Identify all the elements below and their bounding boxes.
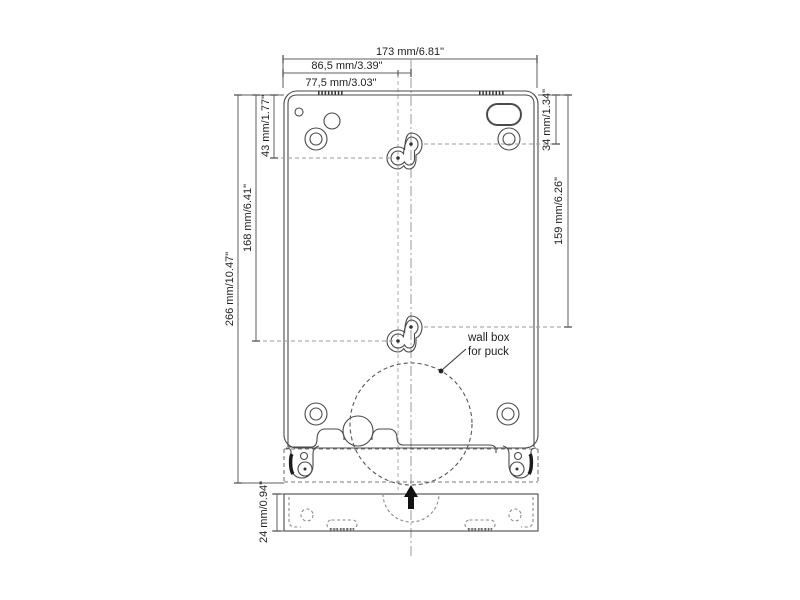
dim-label-width-total: 173 mm/6.81" — [376, 46, 444, 58]
technical-drawing: wall box for puck 173 mm/6.81" 86,5 mm/3… — [0, 0, 800, 600]
dim-label-holes-span-left: 168 mm/6.41" — [242, 184, 254, 252]
puck-hole — [343, 416, 373, 446]
wall-box-label-line2: for puck — [468, 346, 509, 358]
reference-lines — [398, 60, 411, 558]
wall-box-annotation: wall box for puck — [439, 332, 510, 373]
arrow-up-icon — [404, 485, 418, 509]
cable-slot — [487, 104, 521, 125]
screw-hole-inner — [502, 408, 514, 420]
dimensions-left: 43 mm/1.77" 168 mm/6.41" 266 mm/10.47" — [224, 95, 393, 483]
dim-label-hole-top-right: 34 mm/1.34" — [541, 89, 553, 151]
corner-hole — [295, 108, 303, 116]
screw-hole-inner — [503, 133, 515, 145]
dim-label-width-center: 86,5 mm/3.39" — [311, 60, 382, 72]
mounting-tab-right — [503, 446, 536, 478]
screw-hole-outer — [497, 403, 519, 425]
wall-box-label-line1: wall box — [467, 332, 510, 344]
tab-fold-dark — [291, 454, 293, 474]
tab-fold-dark — [529, 454, 531, 474]
screw-hole-inner — [310, 408, 322, 420]
dimension-depth: 24 mm/0.94" — [258, 481, 284, 543]
bottom-contour-left — [288, 429, 344, 447]
drawing-canvas: wall box for puck 173 mm/6.81" 86,5 mm/3… — [0, 0, 800, 600]
keyhole-mount-bottom — [387, 316, 422, 352]
dim-label-height-total: 266 mm/10.47" — [224, 252, 236, 326]
keyhole-mount-top — [387, 133, 422, 169]
mounting-tab-left — [286, 446, 319, 478]
screw-hole-inner — [310, 133, 322, 145]
screw-hole-outer — [498, 128, 520, 150]
dim-label-depth: 24 mm/0.94" — [258, 481, 270, 543]
dimensions-top: 173 mm/6.81" 86,5 mm/3.39" 77,5 mm/3.03" — [283, 46, 537, 89]
screw-hole — [324, 113, 340, 129]
dim-label-holes-span-right: 159 mm/6.26" — [553, 177, 565, 245]
leader-line — [442, 349, 466, 370]
screw-hole-outer — [305, 403, 327, 425]
dim-label-hole-top-left: 43 mm/1.77" — [260, 95, 272, 157]
dim-label-width-hole: 77,5 mm/3.03" — [305, 77, 376, 89]
leader-dot — [439, 369, 444, 374]
screw-hole-outer — [305, 128, 327, 150]
